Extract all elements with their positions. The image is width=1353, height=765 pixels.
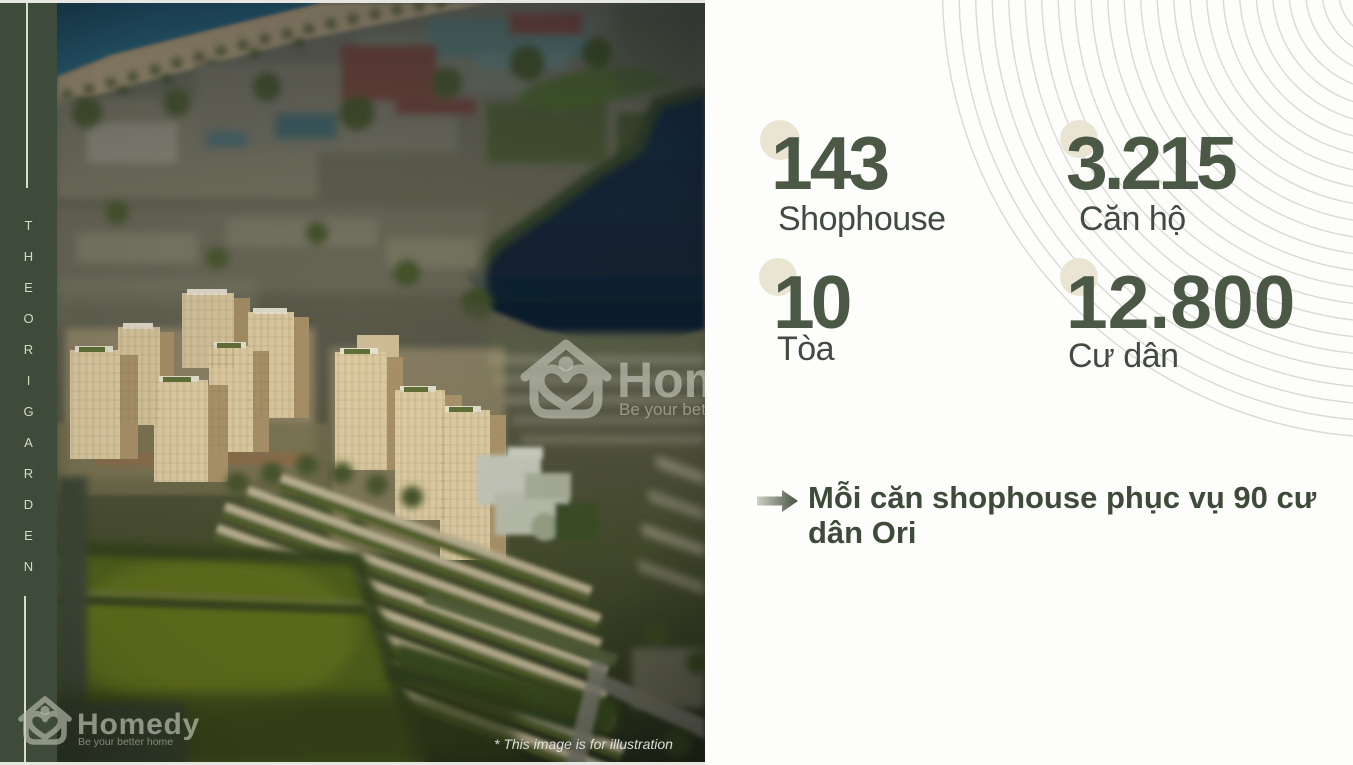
- svg-text:Be your better home: Be your better home: [619, 400, 705, 419]
- svg-text:Be your better home: Be your better home: [78, 736, 173, 748]
- svg-text:* This image is for illustrati: * This image is for illustration: [494, 736, 673, 752]
